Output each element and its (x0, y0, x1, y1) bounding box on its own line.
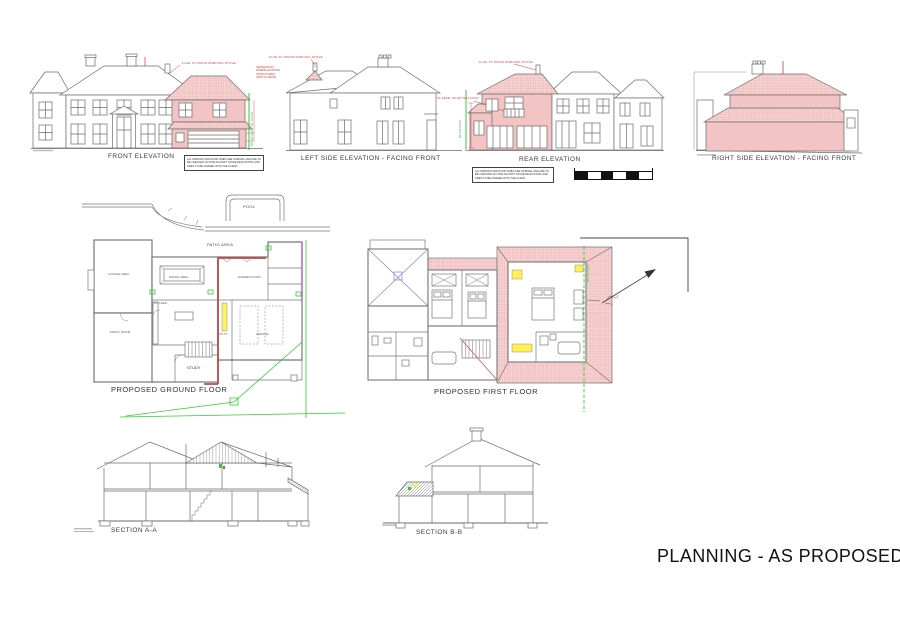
room-label-kitchen: KITCHEN (154, 301, 167, 305)
ground-floor-label: PROPOSED GROUND FLOOR (111, 385, 227, 394)
room-label-dining: DINING AREA (169, 275, 188, 279)
right-side-elevation-drawing (694, 61, 862, 156)
boundary-at-rear-label: BOUNDARY AT REAR (250, 100, 254, 146)
separation-annotation: SEPARATION WHERE EXISTING STRUCTURES ABU… (256, 66, 280, 79)
scale-bar (574, 171, 653, 180)
room-label-study: STUDY (187, 365, 201, 370)
room-label-family: FAMILY ROOM (110, 330, 130, 334)
right-side-elevation-label: RIGHT SIDE ELEVATION - FACING FRONT (712, 155, 856, 162)
room-label-garage: GARAGE (256, 332, 269, 336)
front-elevation-label: FRONT ELEVATION (108, 153, 174, 160)
section-a-label: SECTION A-A (111, 527, 157, 534)
boundary-label-first-floor: BOUNDARY (586, 252, 590, 282)
rear-elevation-label: REAR ELEVATION (519, 156, 581, 163)
planning-sheet: FRONT ELEVATION LEFT SIDE ELEVATION - FA… (0, 0, 900, 635)
left-side-elevation-drawing (286, 55, 462, 151)
separation-line-4: ABUT AT REAR (256, 76, 280, 79)
flue-annotation-left-side: FLUE TO WOOD BURNING STOVE (269, 55, 323, 59)
general-note-rear: ALL WINDOW AND DOOR SIZES ARE NOMINAL AN… (472, 167, 554, 183)
pool-label: POOL (243, 204, 255, 209)
section-a-drawing (74, 442, 309, 532)
flue-annotation-front: FLUE TO WOOD BURNING STOVE (182, 61, 236, 65)
first-floor-plan-drawing (368, 238, 688, 412)
patio-area-label: PATIO AREA (207, 242, 233, 247)
section-b-label: SECTION B-B (416, 529, 462, 536)
sheet-title: PLANNING - AS PROPOSED (657, 546, 900, 567)
room-label-garden: GARDEN ROOM (238, 275, 261, 279)
juliet-balcony-annotation: GLAZED JULIET BALCONY (437, 96, 479, 100)
flue-annotation-rear: FLUE TO WOOD BURNING STOVE (479, 60, 533, 64)
room-label-utility: UTILITY (218, 333, 228, 336)
general-note-front: ALL WINDOW AND DOOR SIZES ARE NOMINAL AN… (184, 155, 264, 171)
section-b-drawing (382, 428, 548, 528)
left-side-elevation-label: LEFT SIDE ELEVATION - FACING FRONT (301, 155, 441, 162)
boundary-label-rear: BOUNDARY (458, 108, 462, 138)
rear-elevation-drawing (466, 64, 664, 151)
first-floor-label: PROPOSED FIRST FLOOR (434, 387, 538, 396)
room-label-lounge: LOUNGE AREA (108, 272, 129, 276)
front-elevation-drawing (30, 54, 263, 151)
